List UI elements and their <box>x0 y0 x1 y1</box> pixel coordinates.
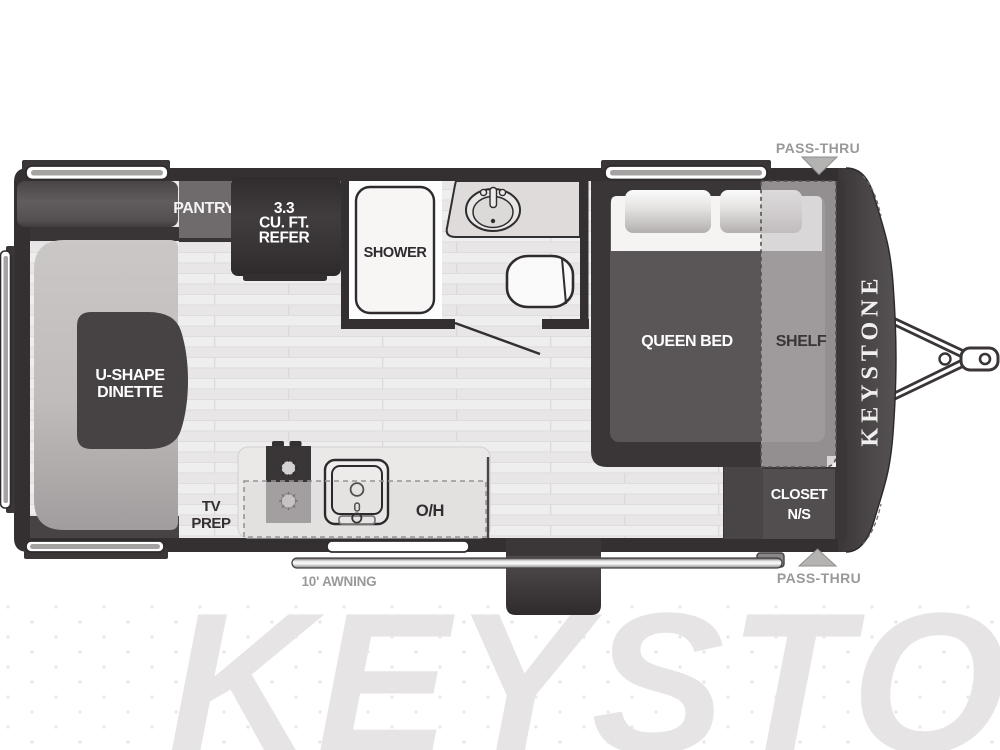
svg-text:KEYSTONE: KEYSTONE <box>858 274 884 447</box>
svg-text:N/S: N/S <box>788 507 812 523</box>
svg-text:PANTRY: PANTRY <box>173 200 235 217</box>
svg-text:REFER: REFER <box>259 230 310 247</box>
svg-text:SHOWER: SHOWER <box>364 245 428 261</box>
svg-text:DINETTE: DINETTE <box>97 384 163 401</box>
svg-text:PREP: PREP <box>191 515 231 532</box>
svg-text:10' AWNING: 10' AWNING <box>302 574 377 589</box>
svg-text:QUEEN BED: QUEEN BED <box>641 333 733 350</box>
svg-text:PASS-THRU: PASS-THRU <box>776 140 860 156</box>
svg-text:SHELF: SHELF <box>776 333 827 350</box>
svg-text:PASS-THRU: PASS-THRU <box>777 570 861 586</box>
svg-text:CLOSET: CLOSET <box>771 487 828 503</box>
svg-text:TV: TV <box>202 498 221 515</box>
svg-text:U-SHAPE: U-SHAPE <box>95 367 165 384</box>
